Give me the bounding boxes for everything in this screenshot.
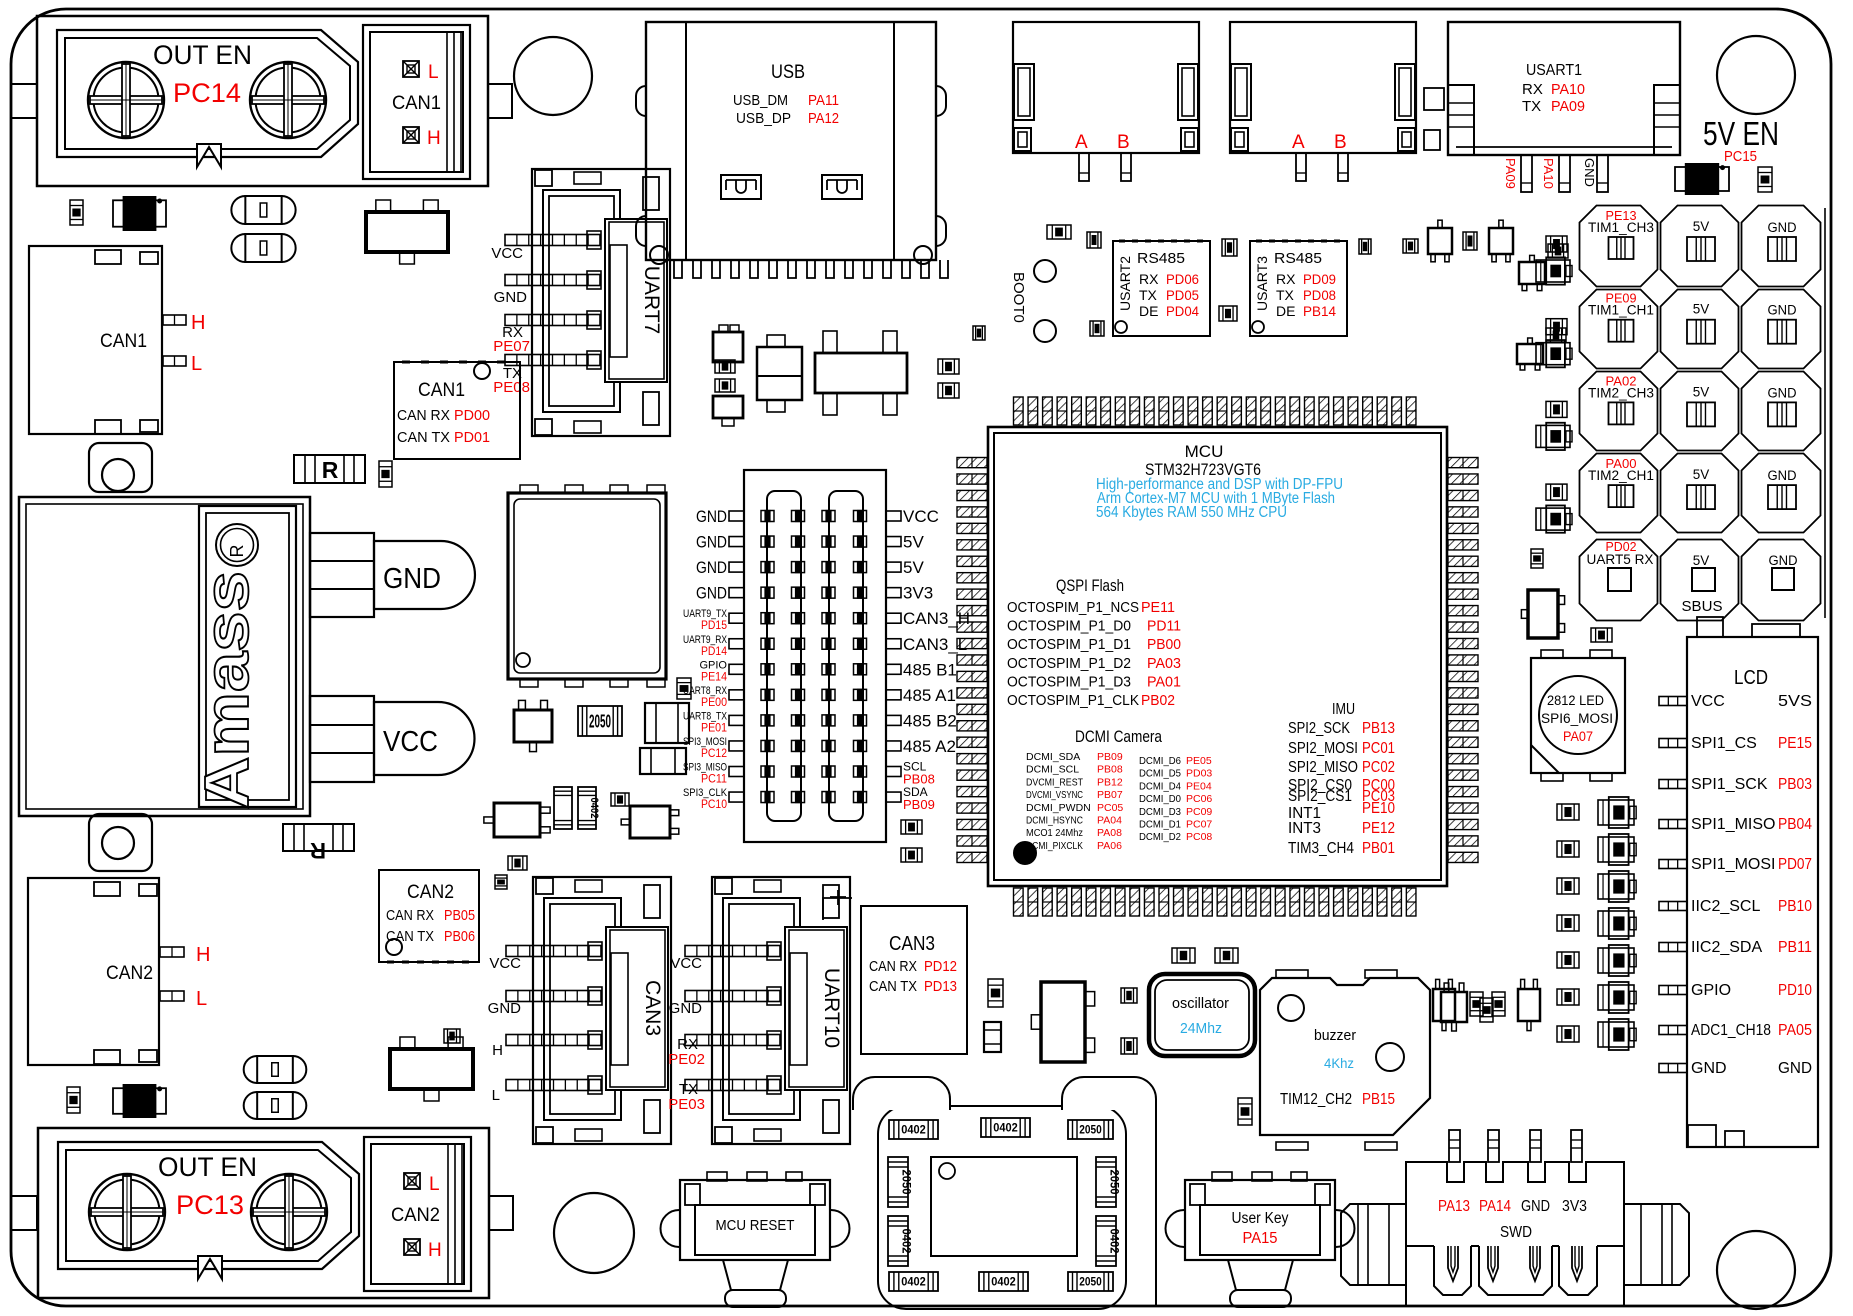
svg-text:0402: 0402 (588, 798, 600, 819)
svg-text:SPI6_MOSI: SPI6_MOSI (1541, 711, 1613, 726)
svg-text:PE10: PE10 (1362, 800, 1395, 817)
svg-text:UART9_TX: UART9_TX (683, 608, 728, 620)
svg-text:GND: GND (669, 1000, 703, 1017)
svg-text:L: L (429, 1174, 440, 1195)
svg-text:PE15: PE15 (1778, 735, 1812, 752)
svg-text:R: R (322, 457, 339, 483)
svg-text:SPI3_MISO: SPI3_MISO (683, 762, 727, 774)
svg-text:4Khz: 4Khz (1324, 1055, 1354, 1071)
svg-text:DE: DE (1139, 303, 1158, 319)
svg-text:VCC: VCC (670, 955, 702, 972)
svg-text:GND: GND (696, 534, 727, 552)
svg-text:IIC2_SCL: IIC2_SCL (1691, 898, 1760, 915)
svg-text:SPI2_SCK: SPI2_SCK (1288, 720, 1351, 737)
svg-text:PB13: PB13 (1362, 720, 1395, 737)
svg-text:5V: 5V (903, 533, 924, 552)
svg-text:UART7: UART7 (640, 266, 663, 334)
svg-text:H: H (427, 128, 441, 149)
svg-text:PB03: PB03 (1778, 776, 1812, 793)
svg-text:3V3: 3V3 (1562, 1198, 1587, 1215)
svg-text:PD09: PD09 (1303, 271, 1336, 287)
svg-text:GPIO: GPIO (1691, 982, 1731, 999)
svg-text:0402: 0402 (1107, 1229, 1121, 1254)
svg-text:5V: 5V (1693, 219, 1710, 234)
svg-text:TIM12_CH2: TIM12_CH2 (1280, 1091, 1352, 1108)
svg-text:CAN1: CAN1 (100, 331, 147, 352)
svg-text:CAN3_L: CAN3_L (903, 635, 967, 654)
svg-text:PE07: PE07 (493, 338, 530, 355)
svg-text:3V3: 3V3 (903, 584, 933, 603)
svg-text:oscillator: oscillator (1172, 996, 1229, 1012)
svg-text:5V: 5V (1693, 302, 1710, 317)
svg-text:PC01: PC01 (1362, 740, 1395, 757)
svg-text:PA15: PA15 (1243, 1230, 1278, 1247)
svg-text:TIM3_CH4: TIM3_CH4 (1288, 840, 1354, 857)
svg-text:A: A (1075, 132, 1088, 153)
svg-text:MCO1 24Mhz: MCO1 24Mhz (1026, 827, 1083, 839)
svg-text:GND: GND (1521, 1198, 1550, 1215)
svg-text:GND: GND (494, 289, 528, 306)
svg-text:PE03: PE03 (668, 1096, 705, 1113)
svg-text:PB10: PB10 (1778, 898, 1812, 915)
svg-text:DCMI_HSYNC: DCMI_HSYNC (1026, 815, 1083, 827)
svg-text:DCMI_D2: DCMI_D2 (1139, 831, 1181, 843)
svg-text:L: L (196, 988, 207, 1010)
svg-text:UART5 RX: UART5 RX (1587, 552, 1654, 567)
svg-text:0402: 0402 (991, 1276, 1016, 1289)
svg-text:2812 LED: 2812 LED (1547, 693, 1604, 708)
svg-text:DCMI_PWDN: DCMI_PWDN (1026, 802, 1091, 814)
svg-text:PE02: PE02 (668, 1051, 705, 1068)
svg-text:VCC: VCC (1691, 693, 1725, 710)
svg-text:PB00: PB00 (1147, 636, 1181, 653)
svg-text:0402: 0402 (993, 1122, 1018, 1135)
svg-text:INT3: INT3 (1288, 820, 1321, 837)
svg-text:CAN RX: CAN RX (397, 407, 450, 424)
svg-text:0402: 0402 (899, 1229, 913, 1254)
svg-text:L: L (191, 353, 202, 375)
svg-text:CAN RX: CAN RX (386, 907, 434, 924)
svg-text:DCMI_D3: DCMI_D3 (1139, 806, 1181, 818)
svg-text:USB: USB (771, 62, 805, 83)
svg-text:CAN TX: CAN TX (397, 429, 450, 446)
svg-text:PD00: PD00 (454, 407, 490, 424)
svg-text:SPI1_SCK: SPI1_SCK (1691, 776, 1768, 793)
svg-text:L: L (492, 1087, 500, 1104)
svg-text:PD03: PD03 (1186, 768, 1212, 780)
svg-text:PA05: PA05 (1778, 1022, 1812, 1039)
svg-text:OCTOSPIM_P1_NCS: OCTOSPIM_P1_NCS (1007, 599, 1139, 616)
svg-text:PA09: PA09 (1503, 158, 1518, 189)
svg-text:IIC2_SDA: IIC2_SDA (1691, 939, 1762, 956)
svg-text:CAN2: CAN2 (407, 882, 454, 903)
svg-text:GND: GND (696, 559, 727, 577)
svg-text:GND: GND (1768, 468, 1797, 483)
svg-text:SPI1_MOSI: SPI1_MOSI (1691, 856, 1775, 873)
svg-text:24Mhz: 24Mhz (1180, 1021, 1222, 1037)
svg-text:OCTOSPIM_P1_D0: OCTOSPIM_P1_D0 (1007, 618, 1131, 635)
svg-text:PB15: PB15 (1362, 1091, 1395, 1108)
svg-text:PB06: PB06 (444, 928, 475, 945)
svg-text:PD12: PD12 (924, 958, 957, 975)
svg-text:0402: 0402 (901, 1276, 926, 1289)
svg-text:GND: GND (1582, 158, 1597, 187)
svg-text:UART8_RX: UART8_RX (683, 685, 728, 697)
svg-text:TX: TX (1276, 287, 1295, 303)
svg-text:PE04: PE04 (1186, 780, 1212, 792)
svg-text:RS485: RS485 (1274, 250, 1322, 267)
svg-text:L: L (428, 62, 439, 83)
svg-text:PB08: PB08 (1097, 764, 1123, 776)
svg-text:5V EN: 5V EN (1703, 115, 1779, 152)
svg-text:CAN TX: CAN TX (386, 928, 434, 945)
svg-text:CAN3: CAN3 (889, 933, 935, 955)
svg-text:A: A (1292, 132, 1305, 153)
svg-text:SBUS: SBUS (1682, 598, 1723, 615)
svg-text:SPI2_MOSI: SPI2_MOSI (1288, 740, 1358, 757)
svg-text:RS485: RS485 (1137, 250, 1185, 267)
svg-text:DCMI_SCL: DCMI_SCL (1026, 764, 1079, 776)
svg-text:TIM1_CH1: TIM1_CH1 (1588, 303, 1654, 318)
svg-text:PD01: PD01 (454, 429, 490, 446)
svg-text:PA09: PA09 (1551, 98, 1585, 115)
svg-text:PA06: PA06 (1097, 840, 1122, 852)
svg-text:MCU RESET: MCU RESET (716, 1217, 795, 1234)
svg-text:CAN2: CAN2 (391, 1205, 440, 1226)
svg-text:GPIO: GPIO (699, 659, 727, 671)
svg-text:PE08: PE08 (493, 379, 530, 396)
svg-text:PB09: PB09 (903, 797, 935, 812)
svg-text:2050: 2050 (589, 711, 611, 732)
svg-text:TX: TX (1139, 287, 1158, 303)
svg-text:PA13: PA13 (1438, 1198, 1470, 1215)
svg-text:SWD: SWD (1500, 1224, 1532, 1241)
svg-text:H: H (428, 1240, 442, 1261)
svg-text:BOOT0: BOOT0 (1010, 272, 1027, 323)
svg-text:GND: GND (696, 508, 727, 526)
svg-text:USB_DM: USB_DM (733, 92, 788, 109)
svg-text:PA01: PA01 (1147, 673, 1181, 690)
svg-text:PA11: PA11 (808, 92, 839, 109)
svg-text:VCC: VCC (903, 507, 939, 526)
svg-text:PC08: PC08 (1186, 831, 1212, 843)
svg-text:PA10: PA10 (1541, 158, 1556, 189)
svg-text:CAN TX: CAN TX (869, 978, 917, 995)
svg-text:485 A2: 485 A2 (903, 737, 956, 756)
svg-text:GND: GND (1768, 385, 1797, 400)
svg-text:DCMI Camera: DCMI Camera (1075, 727, 1162, 746)
svg-text:PA14: PA14 (1479, 1198, 1511, 1215)
svg-text:DCMI_D6: DCMI_D6 (1139, 755, 1181, 767)
svg-text:VCC: VCC (383, 726, 438, 758)
svg-text:USB_DP: USB_DP (736, 110, 791, 127)
svg-text:RX: RX (1276, 271, 1296, 287)
svg-text:GND: GND (488, 1000, 522, 1017)
svg-text:ADC1_CH18: ADC1_CH18 (1691, 1022, 1771, 1039)
svg-text:SPI2_MISO: SPI2_MISO (1288, 759, 1358, 776)
svg-text:2050: 2050 (1079, 1276, 1102, 1289)
svg-text:USART1: USART1 (1526, 62, 1582, 79)
svg-text:PB12: PB12 (1097, 776, 1123, 788)
svg-text:OCTOSPIM_P1_D3: OCTOSPIM_P1_D3 (1007, 673, 1131, 690)
svg-text:PE01: PE01 (701, 722, 727, 734)
svg-text:PB09: PB09 (1097, 751, 1123, 763)
svg-text:GND: GND (1769, 553, 1798, 568)
svg-text:PC05: PC05 (1097, 802, 1123, 814)
svg-text:PB02: PB02 (1141, 692, 1175, 709)
svg-text:PD13: PD13 (924, 978, 957, 995)
svg-text:PB11: PB11 (1778, 939, 1812, 956)
svg-text:2050: 2050 (899, 1170, 913, 1195)
svg-text:TIM1_CH3: TIM1_CH3 (1588, 220, 1654, 235)
svg-text:USART2: USART2 (1117, 256, 1133, 311)
svg-text:PE05: PE05 (1186, 755, 1212, 767)
svg-text:PC02: PC02 (1362, 759, 1395, 776)
svg-text:PD06: PD06 (1166, 271, 1199, 287)
svg-text:H: H (492, 1042, 503, 1059)
svg-text:CAN2: CAN2 (106, 963, 153, 984)
svg-text:OUT EN: OUT EN (158, 1152, 257, 1182)
svg-text:UART10: UART10 (820, 968, 843, 1048)
svg-text:5VS: 5VS (1778, 693, 1812, 710)
svg-text:Amass: Amass (193, 571, 262, 809)
svg-text:PB04: PB04 (1778, 816, 1812, 833)
svg-text:OCTOSPIM_P1_D2: OCTOSPIM_P1_D2 (1007, 655, 1131, 672)
svg-text:buzzer: buzzer (1314, 1027, 1356, 1044)
svg-text:RX: RX (1522, 81, 1543, 98)
svg-text:DCMI_SDA: DCMI_SDA (1026, 751, 1080, 763)
svg-text:485 B1: 485 B1 (903, 660, 957, 679)
svg-text:OCTOSPIM_P1_CLK: OCTOSPIM_P1_CLK (1007, 692, 1139, 709)
svg-text:SPI3_CLK: SPI3_CLK (683, 787, 728, 799)
svg-text:PA03: PA03 (1147, 655, 1181, 672)
svg-text:DCMI_D0: DCMI_D0 (1139, 793, 1181, 805)
svg-text:UART9_RX: UART9_RX (683, 634, 728, 646)
svg-text:PC12: PC12 (701, 748, 727, 760)
svg-text:5V: 5V (1693, 467, 1710, 482)
svg-text:GND: GND (1778, 1060, 1812, 1077)
svg-text:DCMI_D1: DCMI_D1 (1139, 819, 1181, 831)
svg-text:H: H (191, 312, 205, 334)
svg-text:2050: 2050 (1107, 1170, 1121, 1195)
svg-text:PD05: PD05 (1166, 287, 1199, 303)
svg-text:2050: 2050 (1079, 1124, 1102, 1137)
svg-text:PB07: PB07 (1097, 789, 1123, 801)
svg-text:PB05: PB05 (444, 907, 475, 924)
svg-text:PD04: PD04 (1166, 303, 1199, 319)
svg-text:485 B2: 485 B2 (903, 711, 957, 730)
svg-text:PA12: PA12 (808, 110, 839, 127)
svg-text:B: B (1334, 132, 1347, 153)
svg-text:SPI1_MISO: SPI1_MISO (1691, 816, 1775, 833)
svg-text:R: R (227, 545, 247, 558)
svg-text:OCTOSPIM_P1_D1: OCTOSPIM_P1_D1 (1007, 636, 1131, 653)
svg-text:PC09: PC09 (1186, 806, 1212, 818)
svg-text:R: R (310, 838, 326, 863)
svg-text:B: B (1117, 132, 1130, 153)
svg-text:PD15: PD15 (701, 620, 727, 632)
svg-text:PA04: PA04 (1097, 815, 1122, 827)
svg-text:DVCMI_REST: DVCMI_REST (1026, 776, 1083, 788)
svg-text:VCC: VCC (491, 245, 523, 262)
svg-text:PC15: PC15 (1724, 148, 1757, 165)
svg-text:H: H (196, 944, 210, 966)
svg-text:RX: RX (1139, 271, 1159, 287)
svg-text:CAN1: CAN1 (418, 380, 465, 401)
svg-text:GND: GND (1768, 220, 1797, 235)
svg-text:PD14: PD14 (701, 646, 728, 658)
svg-text:LCD: LCD (1734, 667, 1768, 689)
svg-text:CAN RX: CAN RX (869, 958, 917, 975)
svg-text:5V: 5V (903, 558, 924, 577)
svg-text:DE: DE (1276, 303, 1295, 319)
svg-text:PC13: PC13 (176, 1190, 244, 1220)
svg-text:OUT EN: OUT EN (153, 40, 252, 70)
svg-text:USART3: USART3 (1254, 256, 1270, 311)
svg-text:TIM2_CH3: TIM2_CH3 (1588, 385, 1654, 400)
svg-text:DCMI_D5: DCMI_D5 (1139, 768, 1181, 780)
svg-text:TX: TX (1522, 98, 1541, 115)
svg-text:PA07: PA07 (1563, 729, 1593, 744)
svg-text:PA10: PA10 (1551, 81, 1585, 98)
svg-text:564 Kbytes RAM 550 MHz CPU: 564 Kbytes RAM 550 MHz CPU (1096, 504, 1287, 521)
svg-text:PC11: PC11 (701, 774, 727, 786)
svg-text:QSPI Flash: QSPI Flash (1056, 576, 1124, 595)
svg-text:MCU: MCU (1185, 442, 1224, 461)
svg-text:SPI1_CS: SPI1_CS (1691, 735, 1757, 752)
svg-text:PE00: PE00 (701, 697, 727, 709)
svg-text:PC14: PC14 (173, 78, 241, 108)
svg-text:PD07: PD07 (1778, 856, 1812, 873)
svg-text:PC06: PC06 (1186, 793, 1212, 805)
svg-text:PC10: PC10 (701, 799, 727, 811)
svg-text:PE14: PE14 (701, 671, 728, 683)
svg-text:IMU: IMU (1332, 701, 1355, 718)
svg-text:0402: 0402 (901, 1124, 926, 1137)
svg-text:PB01: PB01 (1362, 840, 1395, 857)
svg-text:User Key: User Key (1232, 1210, 1289, 1227)
svg-text:GND: GND (696, 585, 727, 603)
svg-text:PE12: PE12 (1362, 820, 1395, 837)
svg-text:GND: GND (1768, 303, 1797, 318)
svg-text:PC07: PC07 (1186, 819, 1212, 831)
svg-text:PB14: PB14 (1303, 303, 1336, 319)
svg-text:GND: GND (383, 563, 441, 595)
svg-text:PE11: PE11 (1141, 599, 1175, 616)
svg-text:PD08: PD08 (1303, 287, 1336, 303)
svg-text:CAN3_H: CAN3_H (903, 609, 970, 628)
svg-text:485 A1: 485 A1 (903, 686, 956, 705)
svg-text:SPI2_CS1: SPI2_CS1 (1288, 788, 1352, 805)
svg-text:CAN1: CAN1 (392, 93, 441, 114)
svg-text:5V: 5V (1693, 384, 1710, 399)
svg-text:DVCMI_VSYNC: DVCMI_VSYNC (1026, 789, 1083, 801)
svg-text:PD11: PD11 (1147, 618, 1181, 635)
svg-text:VCC: VCC (489, 955, 521, 972)
svg-text:PD10: PD10 (1778, 982, 1812, 999)
svg-text:GND: GND (1691, 1060, 1727, 1077)
svg-text:CAN3: CAN3 (641, 980, 664, 1036)
svg-text:PA08: PA08 (1097, 827, 1122, 839)
svg-text:DCMI_D4: DCMI_D4 (1139, 780, 1181, 792)
svg-text:5V: 5V (1693, 553, 1710, 568)
svg-text:TIM2_CH1: TIM2_CH1 (1588, 468, 1654, 483)
